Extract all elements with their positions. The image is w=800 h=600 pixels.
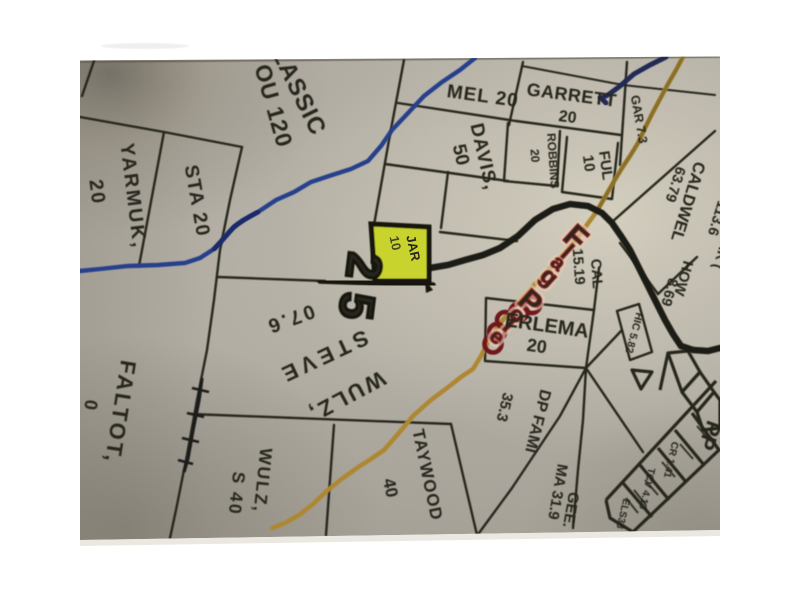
svg-text:20: 20	[526, 335, 549, 358]
svg-text:CAL: CAL	[587, 258, 605, 289]
svg-text:20: 20	[528, 149, 543, 164]
svg-text:15.19: 15.19	[569, 248, 587, 285]
svg-text:40: 40	[379, 477, 402, 499]
svg-text:20: 20	[84, 178, 109, 206]
svg-text:10: 10	[387, 234, 405, 251]
svg-text:10: 10	[579, 154, 598, 173]
svg-text:20: 20	[558, 108, 578, 127]
